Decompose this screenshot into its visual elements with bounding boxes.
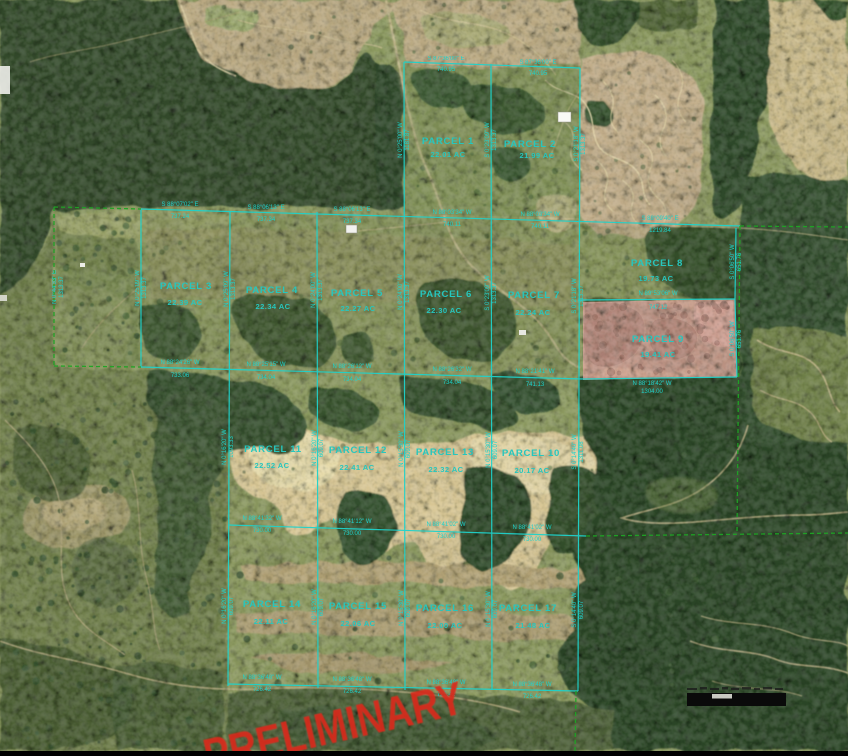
svg-text:N 0°25'00" W: N 0°25'00" W xyxy=(398,122,404,158)
svg-text:1313.37: 1313.37 xyxy=(405,281,411,303)
svg-text:1313.37: 1313.37 xyxy=(492,282,498,304)
svg-text:22.39 AC: 22.39 AC xyxy=(168,298,203,307)
svg-text:726.42: 726.42 xyxy=(523,694,542,700)
svg-text:PARCEL 7: PARCEL 7 xyxy=(508,290,560,301)
svg-text:PARCEL 15: PARCEL 15 xyxy=(329,601,387,612)
svg-text:N 0°16'20" W: N 0°16'20" W xyxy=(312,589,318,625)
svg-text:PARCEL 8: PARCEL 8 xyxy=(631,258,683,269)
svg-text:22.34 AC: 22.34 AC xyxy=(256,302,291,311)
svg-text:N 88°26'12" W: N 88°26'12" W xyxy=(332,364,371,370)
svg-text:N 88°41'02" W: N 88°41'02" W xyxy=(426,522,465,528)
svg-text:PARCEL 10: PARCEL 10 xyxy=(502,448,560,459)
svg-text:N 88°26'32" W: N 88°26'32" W xyxy=(432,367,471,373)
svg-text:21.99 AC: 21.99 AC xyxy=(520,151,555,160)
svg-text:1313.37: 1313.37 xyxy=(318,279,324,301)
svg-text:N 88°41'02" W: N 88°41'02" W xyxy=(512,525,551,531)
svg-text:734.04: 734.04 xyxy=(443,380,462,386)
svg-text:N 88°21'41" W: N 88°21'41" W xyxy=(515,369,554,375)
svg-text:S 0°14'40" W: S 0°14'40" W xyxy=(572,434,578,470)
svg-text:730.00: 730.00 xyxy=(343,531,362,537)
svg-text:N 88°36'48" W: N 88°36'48" W xyxy=(332,677,371,683)
svg-text:PARCEL 12: PARCEL 12 xyxy=(329,445,387,456)
svg-text:N 0°15'30" W: N 0°15'30" W xyxy=(399,590,405,626)
svg-text:PARCEL 14: PARCEL 14 xyxy=(243,599,301,610)
svg-text:609.07: 609.07 xyxy=(229,596,235,615)
svg-text:N 88°18'42" W: N 88°18'42" W xyxy=(632,381,671,387)
svg-text:609.07: 609.07 xyxy=(319,438,325,457)
svg-text:PARCEL 5: PARCEL 5 xyxy=(331,288,383,299)
svg-text:1093.33: 1093.33 xyxy=(229,436,235,458)
svg-text:1313.37: 1313.37 xyxy=(59,276,65,298)
svg-text:740.95: 740.95 xyxy=(529,71,548,77)
svg-text:N 88°41'12" W: N 88°41'12" W xyxy=(332,519,371,525)
svg-text:N 88°41'32" W: N 88°41'32" W xyxy=(242,516,281,522)
svg-text:609.07: 609.07 xyxy=(579,600,585,619)
svg-text:S 87°36'00" E: S 87°36'00" E xyxy=(427,56,464,62)
svg-text:PARCEL 4: PARCEL 4 xyxy=(246,285,298,296)
svg-text:1181.87: 1181.87 xyxy=(405,129,411,151)
svg-text:S 0°21'18" W: S 0°21'18" W xyxy=(574,126,580,162)
svg-text:S 88°09'40" E: S 88°09'40" E xyxy=(641,216,678,222)
svg-text:N 0°15'30" W: N 0°15'30" W xyxy=(399,431,405,467)
svg-text:651.76: 651.76 xyxy=(737,329,743,348)
svg-text:734.04: 734.04 xyxy=(257,375,276,381)
svg-text:22.32 AC: 22.32 AC xyxy=(429,465,464,474)
svg-text:1311.08: 1311.08 xyxy=(579,441,585,463)
svg-text:737.34: 737.34 xyxy=(257,217,276,223)
svg-text:N 0°16'20" W: N 0°16'20" W xyxy=(222,429,228,465)
svg-text:1313.37: 1313.37 xyxy=(231,278,237,300)
svg-text:N 0°25'09" W: N 0°25'09" W xyxy=(224,271,230,307)
svg-text:726.42: 726.42 xyxy=(253,687,272,693)
svg-text:20.17 AC: 20.17 AC xyxy=(515,466,550,475)
svg-text:730.00: 730.00 xyxy=(523,537,542,543)
svg-text:N 88°03'34" W: N 88°03'34" W xyxy=(520,212,559,218)
svg-text:741.13: 741.13 xyxy=(526,382,545,388)
svg-text:N 0°15'30" W: N 0°15'30" W xyxy=(486,432,492,468)
svg-text:609.07: 609.07 xyxy=(406,598,412,617)
svg-text:730.00: 730.00 xyxy=(437,534,456,540)
svg-text:PARCEL 1: PARCEL 1 xyxy=(422,136,474,147)
svg-text:737.24: 737.24 xyxy=(171,214,190,220)
svg-text:740.95: 740.95 xyxy=(437,67,456,73)
svg-text:N 88°36'48" W: N 88°36'48" W xyxy=(242,675,281,681)
svg-text:1313.37: 1313.37 xyxy=(581,133,587,155)
svg-text:S 0°14'40" W: S 0°14'40" W xyxy=(572,592,578,628)
svg-text:609.07: 609.07 xyxy=(493,599,499,618)
svg-text:S 0°21'18" W: S 0°21'18" W xyxy=(572,278,578,314)
svg-text:651.76: 651.76 xyxy=(737,252,743,271)
svg-text:22.00 AC: 22.00 AC xyxy=(428,621,463,630)
svg-text:609.07: 609.07 xyxy=(319,597,325,616)
svg-text:S 88°06'13" E: S 88°06'13" E xyxy=(247,205,284,211)
svg-text:22.06 AC: 22.06 AC xyxy=(341,619,376,628)
svg-text:S 88°07'02" E: S 88°07'02" E xyxy=(161,202,198,208)
svg-text:22.01 AC: 22.01 AC xyxy=(431,150,466,159)
svg-text:734.04: 734.04 xyxy=(343,377,362,383)
svg-text:22.27 AC: 22.27 AC xyxy=(341,304,376,313)
svg-text:N 0°24'00" W: N 0°24'00" W xyxy=(311,272,317,308)
svg-text:1313.37: 1313.37 xyxy=(579,285,585,307)
svg-text:N 0°16'20" W: N 0°16'20" W xyxy=(312,430,318,466)
svg-text:730.00: 730.00 xyxy=(253,528,272,534)
svg-text:N 88°24'26" W: N 88°24'26" W xyxy=(160,360,199,366)
svg-text:733.06: 733.06 xyxy=(171,373,190,379)
svg-text:N 88°36'48" W: N 88°36'48" W xyxy=(512,682,551,688)
svg-text:N 0°24'00" W: N 0°24'00" W xyxy=(398,274,404,310)
svg-text:N 89°53'06" W: N 89°53'06" W xyxy=(638,291,677,297)
svg-text:22.30 AC: 22.30 AC xyxy=(427,306,462,315)
svg-text:747.12: 747.12 xyxy=(649,305,668,311)
svg-text:PARCEL 3: PARCEL 3 xyxy=(160,281,212,292)
svg-text:S 0°23'09" W: S 0°23'09" W xyxy=(485,275,491,311)
svg-text:N 88°25'15" W: N 88°25'15" W xyxy=(246,362,285,368)
svg-text:19.41 AC: 19.41 AC xyxy=(641,350,676,359)
svg-text:PARCEL 16: PARCEL 16 xyxy=(416,603,474,614)
svg-text:S 0°23'09" W: S 0°23'09" W xyxy=(485,122,491,158)
svg-text:N 88°03'34" W: N 88°03'34" W xyxy=(432,210,471,216)
svg-text:PARCEL 6: PARCEL 6 xyxy=(420,289,472,300)
svg-text:22.24 AC: 22.24 AC xyxy=(516,308,551,317)
svg-text:1304.00: 1304.00 xyxy=(641,389,663,395)
svg-text:609.07: 609.07 xyxy=(406,439,412,458)
svg-text:PARCEL 13: PARCEL 13 xyxy=(416,447,474,458)
svg-text:PARCEL 2: PARCEL 2 xyxy=(504,139,556,150)
svg-text:S 87°36'00" E: S 87°36'00" E xyxy=(519,60,556,66)
svg-text:PARCEL 11: PARCEL 11 xyxy=(244,444,302,455)
svg-text:740.11: 740.11 xyxy=(443,222,462,228)
svg-text:737.34: 737.34 xyxy=(343,219,362,225)
svg-text:N 0°44'33" E: N 0°44'33" E xyxy=(52,270,58,304)
svg-text:19.73 AC: 19.73 AC xyxy=(639,274,674,283)
svg-text:N 0°15'30" W: N 0°15'30" W xyxy=(486,591,492,627)
svg-text:S 0°06'50" W: S 0°06'50" W xyxy=(730,244,736,280)
svg-text:1313.37: 1313.37 xyxy=(142,277,148,299)
svg-text:21.48 AC: 21.48 AC xyxy=(516,621,551,630)
svg-text:22.52 AC: 22.52 AC xyxy=(255,461,290,470)
svg-text:S 0°06'50" W: S 0°06'50" W xyxy=(730,321,736,357)
svg-text:22.11 AC: 22.11 AC xyxy=(254,617,289,626)
svg-text:740.11: 740.11 xyxy=(531,224,550,230)
svg-text:S 88°06'13" E: S 88°06'13" E xyxy=(333,207,370,213)
svg-text:PARCEL 9: PARCEL 9 xyxy=(632,334,684,345)
svg-text:609.07: 609.07 xyxy=(493,440,499,459)
svg-text:1219.84: 1219.84 xyxy=(649,228,671,234)
svg-text:1313.37: 1313.37 xyxy=(492,129,498,151)
svg-text:N 0°25'09" W: N 0°25'09" W xyxy=(135,270,141,306)
svg-text:22.41 AC: 22.41 AC xyxy=(340,463,375,472)
svg-text:N 0°16'20" W: N 0°16'20" W xyxy=(222,588,228,624)
svg-text:PARCEL 17: PARCEL 17 xyxy=(499,603,557,614)
